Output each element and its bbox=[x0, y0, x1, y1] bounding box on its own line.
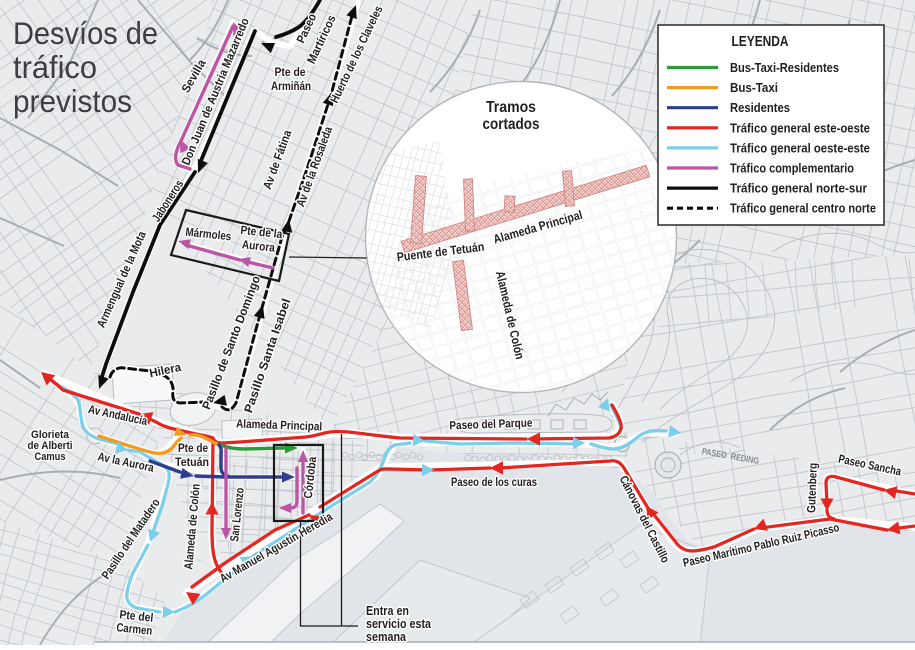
svg-text:Tráfico general centro norte: Tráfico general centro norte bbox=[730, 202, 876, 216]
svg-text:Bus-Taxi-Residentes: Bus-Taxi-Residentes bbox=[730, 61, 839, 75]
svg-text:tráfico: tráfico bbox=[13, 49, 97, 85]
svg-text:Tráfico complementario: Tráfico complementario bbox=[730, 162, 854, 176]
svg-text:Pte de: Pte de bbox=[275, 65, 306, 79]
svg-text:Gutenberg: Gutenberg bbox=[804, 463, 820, 513]
svg-text:Tetuán: Tetuán bbox=[175, 455, 209, 469]
svg-text:semana: semana bbox=[366, 630, 407, 644]
svg-text:Tráfico general norte-sur: Tráfico general norte-sur bbox=[730, 182, 867, 196]
svg-text:Tramos: Tramos bbox=[486, 99, 536, 116]
svg-text:Alameda Principal: Alameda Principal bbox=[236, 417, 322, 434]
svg-text:Desvíos de: Desvíos de bbox=[13, 15, 158, 51]
svg-text:Paseo del Parque: Paseo del Parque bbox=[449, 416, 533, 433]
svg-text:Entra en: Entra en bbox=[366, 604, 409, 618]
svg-text:previstos: previstos bbox=[13, 83, 132, 119]
svg-text:Residentes: Residentes bbox=[730, 101, 790, 115]
svg-text:Camus: Camus bbox=[35, 451, 66, 463]
svg-text:Tráfico general este-oeste: Tráfico general este-oeste bbox=[730, 121, 870, 135]
svg-text:LEYENDA: LEYENDA bbox=[732, 34, 789, 50]
svg-text:cortados: cortados bbox=[483, 116, 540, 133]
svg-text:Pte de: Pte de bbox=[178, 441, 208, 455]
svg-text:Armiñán: Armiñán bbox=[271, 79, 311, 93]
svg-text:Tráfico general oeste-este: Tráfico general oeste-este bbox=[730, 141, 870, 155]
svg-text:Paseo de los curas: Paseo de los curas bbox=[451, 475, 537, 489]
svg-text:servicio esta: servicio esta bbox=[366, 617, 432, 631]
svg-text:Bus-Taxi: Bus-Taxi bbox=[730, 81, 778, 95]
